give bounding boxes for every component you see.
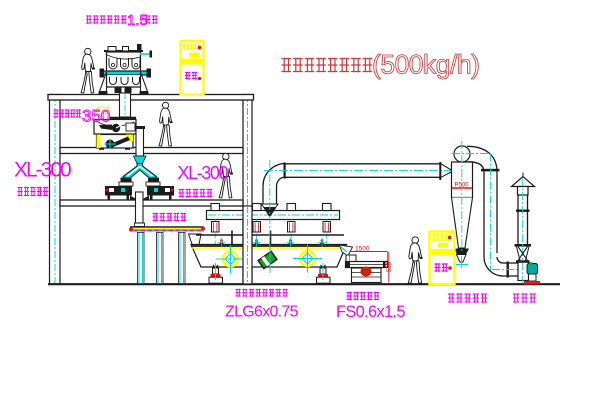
svg-text:ZLG6x0.75: ZLG6x0.75 [225,304,299,321]
svg-text:XL-300: XL-300 [14,159,71,182]
svg-text:FS0.6x1.5: FS0.6x1.5 [336,303,405,321]
svg-text:1.5: 1.5 [127,12,148,29]
svg-text:350: 350 [82,107,110,126]
svg-text:565: 565 [387,261,393,272]
svg-text:XL-300: XL-300 [178,163,229,183]
svg-text:(500kg/h): (500kg/h) [372,50,479,80]
svg-text:1500: 1500 [355,246,370,253]
